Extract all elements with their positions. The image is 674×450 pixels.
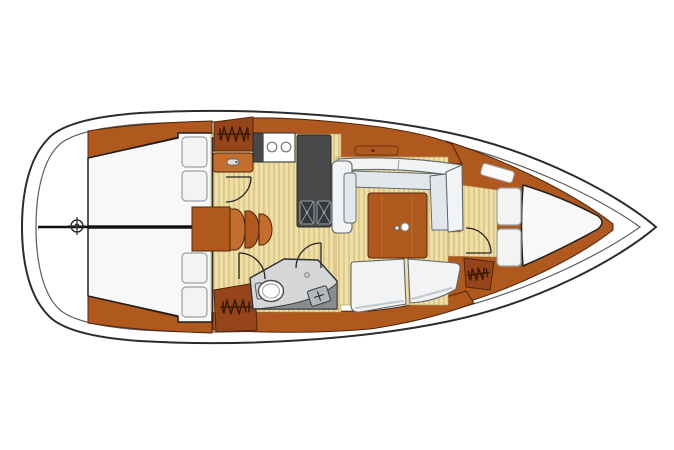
sailboat-interior-plan xyxy=(0,0,674,450)
steps-platform xyxy=(192,207,230,251)
berth-pillow xyxy=(182,253,207,283)
toilet-bowl xyxy=(263,284,280,298)
stove-burner-icon xyxy=(281,142,291,152)
hanging-locker-forward xyxy=(464,258,494,290)
salon-table xyxy=(368,193,427,258)
galley-sink-icon xyxy=(300,201,314,224)
table-fitting-dot xyxy=(395,226,399,230)
settee-seat-right xyxy=(430,174,448,230)
galley-sink-icon xyxy=(317,201,331,224)
locker-handle-dot xyxy=(372,149,375,152)
berth-pillow xyxy=(182,137,207,167)
table-fitting-dot xyxy=(401,223,409,231)
v-berth-pillow xyxy=(497,229,521,266)
head-drain-dot xyxy=(305,273,310,278)
galley-counter-left xyxy=(253,133,264,162)
berth-pillow xyxy=(182,287,207,317)
settee-seat-left xyxy=(344,173,356,223)
companionway-steps xyxy=(192,207,272,251)
berth-pillow xyxy=(182,171,207,201)
stove-burner-icon xyxy=(267,142,277,152)
v-berth-pillow xyxy=(497,188,521,225)
drawer-handle-dot xyxy=(235,161,237,163)
step-tread xyxy=(230,209,245,250)
sailboat-floor-plan-canvas xyxy=(0,0,674,450)
settee-backrest-right xyxy=(446,165,463,232)
